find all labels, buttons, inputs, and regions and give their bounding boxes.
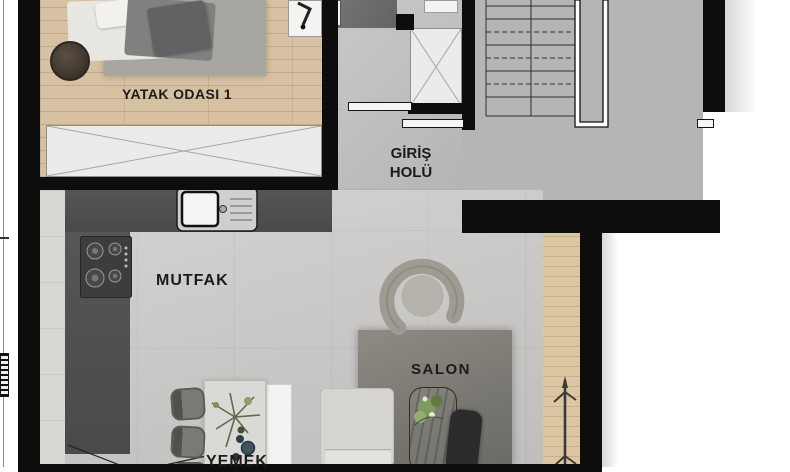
wall-bottom xyxy=(18,464,602,472)
washer xyxy=(424,0,458,13)
coat-rack xyxy=(550,376,580,472)
cooktop xyxy=(80,236,132,298)
kitchen-sink xyxy=(176,186,258,232)
wall-left xyxy=(18,0,40,467)
wardrobe xyxy=(46,125,322,177)
hall-label-line2: HOLÜ xyxy=(381,163,441,182)
dining-chair xyxy=(170,425,206,459)
dining-label: YEMEK xyxy=(206,453,268,471)
wall-closet-bottom xyxy=(408,103,462,114)
hall-label: GİRİŞ HOLÜ xyxy=(381,144,441,182)
wall-stair-right xyxy=(703,0,725,112)
hall-label-line1: GİRİŞ xyxy=(381,144,441,163)
radiator xyxy=(0,353,9,397)
wall-salon-right xyxy=(580,233,602,467)
entrance-closet xyxy=(410,28,462,106)
kitchen-label: MUTFAK xyxy=(156,272,229,290)
living-label: SALON xyxy=(411,361,471,378)
dimension-tick xyxy=(0,237,9,239)
wall-bedroom-right xyxy=(322,0,338,190)
wall-entry-jamb xyxy=(396,14,414,30)
table-lamp xyxy=(289,1,323,38)
armchair xyxy=(376,248,468,336)
bedroom-sliding-door xyxy=(348,102,412,111)
wall-shadow xyxy=(602,233,618,467)
wall-shadow xyxy=(725,0,757,112)
dining-chair xyxy=(170,387,206,421)
side-chair xyxy=(445,408,483,472)
bedroom-label: YATAK ODASI 1 xyxy=(122,86,232,102)
stair-door-mark xyxy=(697,119,714,128)
bench xyxy=(266,384,292,467)
hall-sliding-door xyxy=(402,119,464,128)
wall-bedroom-bottom xyxy=(40,177,338,190)
wall-closet-right xyxy=(462,0,475,130)
sofa xyxy=(320,388,394,467)
floor-plan: YATAK ODASI 1 GİRİŞ HOLÜ MUTFAK SALON YE… xyxy=(0,0,790,472)
entrance-mat xyxy=(338,0,397,28)
bed xyxy=(68,0,238,64)
wall-stair-bottom xyxy=(462,200,720,233)
bedside-table xyxy=(50,41,90,81)
stair-railing xyxy=(575,0,608,127)
stairs xyxy=(476,0,703,233)
nightstand xyxy=(288,0,322,37)
coffee-table-plant xyxy=(405,385,455,435)
